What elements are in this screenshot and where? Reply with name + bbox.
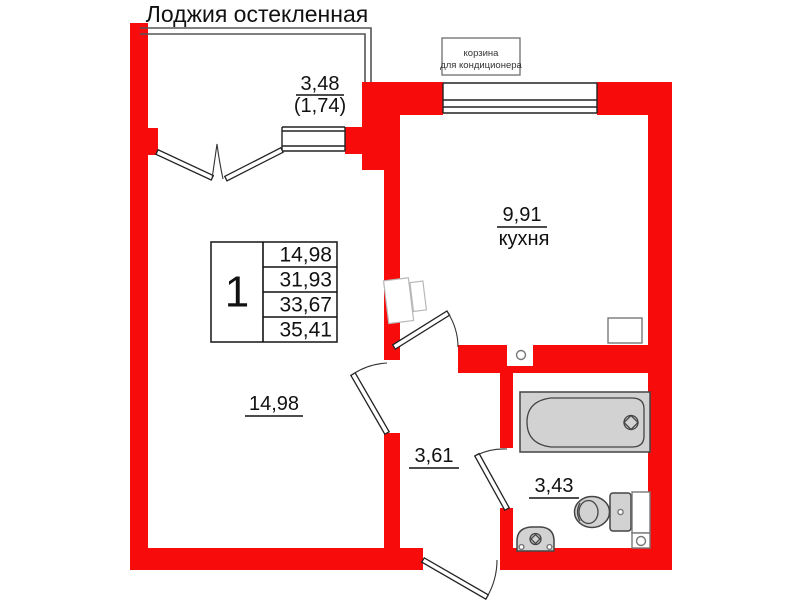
wall-bottom-left — [130, 548, 423, 570]
riser-pipe-circle — [517, 351, 526, 360]
room-door — [351, 363, 389, 434]
kitchen-area-label: 9,91 — [503, 204, 542, 226]
loggia-area-label: 3,48 — [301, 73, 340, 95]
ac-basket-label-line2: для кондиционера — [440, 60, 522, 71]
wall-room-hallway — [384, 433, 400, 548]
hallway-area-label: 3,61 — [415, 445, 454, 467]
info-table-row-3: 33,67 — [279, 294, 332, 317]
room-area-label: 14,98 — [249, 393, 299, 415]
toilet-fixture — [575, 493, 632, 531]
wall-under-riser-notch — [507, 366, 533, 373]
loggia-title: Лоджия остекленная — [146, 1, 368, 27]
info-table-row-2: 31,93 — [279, 269, 332, 292]
ac-basket-label-line1: корзина — [464, 48, 500, 59]
wall-kitchen-window-left-jamb — [362, 82, 443, 115]
wall-kitchen-bathroom — [533, 345, 648, 373]
wall-right-outer — [648, 115, 672, 570]
sink-fixture — [517, 527, 554, 551]
wall-kitchen-hallway-left — [458, 345, 507, 373]
wall-cabinet-ghost — [384, 276, 428, 323]
rooms-count-label: 1 — [225, 268, 249, 317]
bathtub-fixture — [520, 392, 650, 452]
balcony-door — [156, 144, 283, 181]
floor-plan: 1 14,98 31,93 33,67 35,41 Лоджия остекле… — [0, 0, 800, 600]
loggia-area-coef-label: (1,74) — [294, 95, 346, 117]
room-loggia-window — [282, 127, 345, 151]
info-table-row-4: 35,41 — [279, 319, 332, 342]
bathroom-area-label: 3,43 — [535, 475, 574, 497]
wall-left-outer — [130, 23, 148, 570]
kitchen-vent-box — [608, 318, 642, 343]
entrance-door — [422, 558, 497, 599]
apartment-info-table: 1 14,98 31,93 33,67 35,41 — [211, 242, 337, 342]
wall-kitchen-window-right-jamb — [597, 82, 672, 115]
kitchen-name-label: кухня — [499, 228, 550, 250]
wall-bathroom-left-upper — [500, 373, 513, 448]
bathroom-cabinet — [632, 492, 650, 548]
bathroom-door — [475, 449, 509, 510]
wall-bathroom-left-lower — [500, 508, 513, 548]
floor-plan-svg: 1 14,98 31,93 33,67 35,41 Лоджия остекле… — [0, 0, 800, 600]
info-table-row-1: 14,98 — [279, 244, 332, 267]
kitchen-window — [443, 83, 597, 113]
wall-balcony-door-jamb — [130, 128, 158, 155]
wall-loggia-right-stub — [345, 127, 363, 154]
